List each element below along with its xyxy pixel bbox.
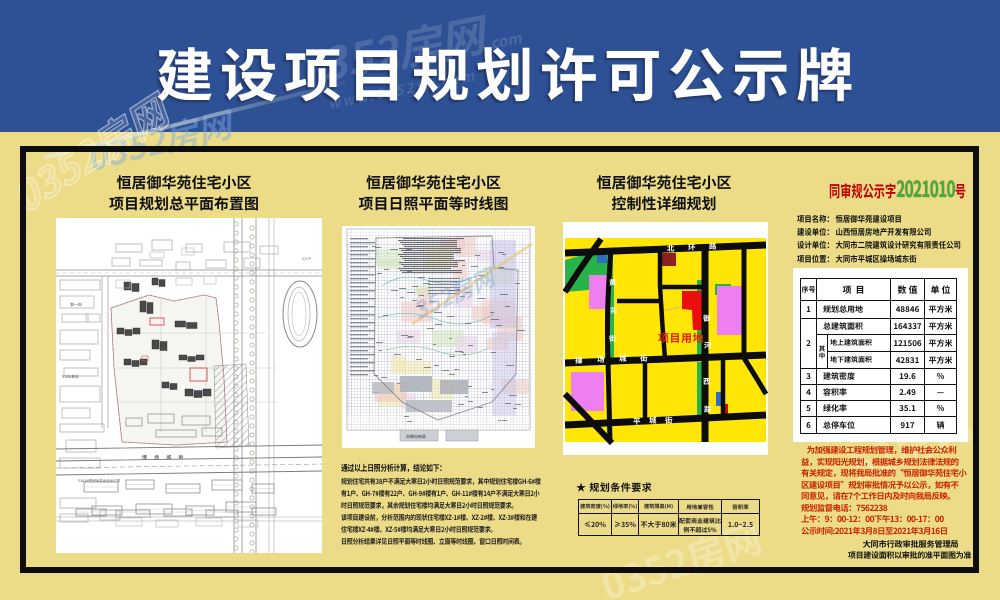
svg-text:XX办事处: XX办事处 — [62, 374, 79, 380]
svg-text:城: 城 — [619, 353, 627, 364]
svg-text:日照分析区: 日照分析区 — [406, 434, 426, 440]
svg-text:第一街: 第一街 — [70, 302, 82, 308]
svg-text:御: 御 — [703, 313, 711, 324]
svg-text:路: 路 — [709, 241, 717, 252]
svg-text:街: 街 — [665, 415, 673, 426]
svg-text:平: 平 — [633, 416, 641, 427]
svg-text:城: 城 — [649, 415, 657, 426]
svg-text:黄: 黄 — [609, 278, 616, 288]
svg-text:街: 街 — [609, 334, 616, 344]
svg-text:北: 北 — [667, 243, 675, 254]
svg-text:项目用地: 项目用地 — [658, 330, 704, 346]
svg-text:博 场 城 街: 博 场 城 街 — [142, 454, 186, 461]
svg-text:场: 场 — [597, 354, 605, 365]
svg-text:河: 河 — [704, 340, 712, 351]
svg-text:路: 路 — [704, 404, 712, 415]
svg-text:操: 操 — [575, 355, 583, 366]
svg-text:Y26X#郑州W务W点W公司: Y26X#郑州W务W点W公司 — [77, 478, 121, 484]
svg-text:环: 环 — [688, 242, 696, 253]
svg-text:花: 花 — [610, 306, 617, 316]
svg-text:街: 街 — [640, 353, 648, 364]
svg-text:西: 西 — [703, 376, 711, 387]
svg-text:G3+P: G3+P — [302, 257, 312, 262]
